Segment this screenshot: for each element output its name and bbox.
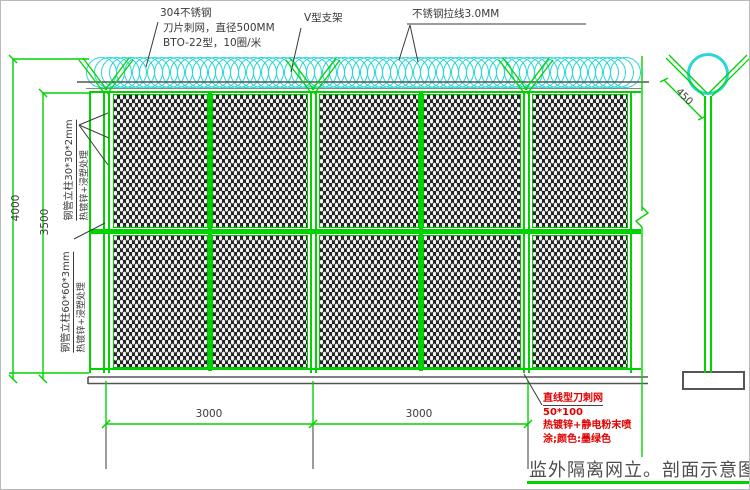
leader-lines <box>74 22 586 469</box>
main-post-spec-label: 钢管立柱60*60*3mm 热镀锌+浸塑处理 <box>57 251 87 352</box>
mesh-spec-line3: 热镀锌+静电粉末喷 <box>543 419 631 433</box>
dim-overall-height: 4000 <box>11 195 23 222</box>
v-bracket-arm <box>290 58 314 90</box>
mesh-spec-line4: 涂;颜色:墨绿色 <box>543 433 631 447</box>
inner-post-spec-label: 钢管立柱30*30*2mm 热镀锌+浸塑处理 <box>60 119 90 220</box>
v-bracket-arm <box>105 58 129 90</box>
gray-rails <box>77 82 649 384</box>
mesh-spec-line2: 50*100 <box>543 406 631 420</box>
mesh-spec-block: 直线型刀刺网 50*100 热镀锌+静电粉末喷 涂;颜色:墨绿色 <box>543 392 631 446</box>
inner-post-spec-line1: 钢管立柱30*30*2mm <box>60 119 77 220</box>
razor-coil-label-line3: BTO-22型，10圈/米 <box>163 38 261 50</box>
v-bracket-arm <box>503 58 527 90</box>
section-v-bracket <box>660 55 749 120</box>
mesh-spec-line1: 直线型刀刺网 <box>543 393 603 406</box>
v-bracket-label: V型支架 <box>304 13 343 25</box>
v-bracket-arm <box>83 58 107 90</box>
v-bracket-arm <box>525 58 549 90</box>
drawing-lines-overlay <box>1 1 749 489</box>
main-post-spec-line1: 钢管立柱60*60*3mm <box>57 251 74 352</box>
dim-mesh-height: 3500 <box>40 209 52 236</box>
drawing-title-underline <box>527 481 749 484</box>
main-post-spec-line2: 热镀锌+浸塑处理 <box>74 251 87 352</box>
tension-wire-label: 不锈钢拉线3.0MM <box>412 9 499 21</box>
dim-bay-width-2: 3000 <box>406 409 433 421</box>
inner-post-spec-line2: 热镀锌+浸塑处理 <box>77 119 90 220</box>
dim-bay-width-1: 3000 <box>196 409 223 421</box>
razor-coil-label-line1: 304不锈钢 <box>160 8 212 20</box>
fence-elevation-drawing: 304不锈钢 刀片刺网，直径500MM BTO-22型，10圈/米 V型支架 不… <box>0 0 750 490</box>
v-bracket-arm <box>312 58 336 90</box>
razor-coil-label-line2: 刀片刺网，直径500MM <box>163 23 275 35</box>
drawing-title: 监外隔离网立。剖面示意图 <box>529 456 750 482</box>
